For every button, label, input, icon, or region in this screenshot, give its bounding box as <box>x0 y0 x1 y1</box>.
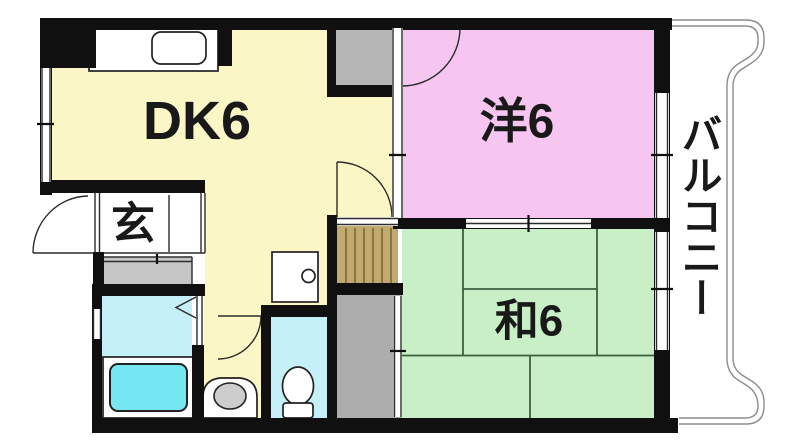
wall-segment <box>327 283 403 295</box>
balcony-label: バルコニー <box>675 113 721 318</box>
bathtub <box>110 364 187 411</box>
japanese-room-label: 和6 <box>495 297 563 346</box>
wall-segment <box>654 18 670 432</box>
wall-segment <box>192 345 204 418</box>
wall-segment <box>261 305 271 418</box>
toilet-bowl <box>283 367 314 405</box>
washbasin-bowl <box>214 383 246 409</box>
wall-segment <box>40 18 672 30</box>
wall-segment <box>218 18 232 66</box>
lower-closet <box>337 295 402 418</box>
floorplan-drawing: DK6 洋6 和6 玄 バルコニー <box>0 0 800 447</box>
wall-segment <box>327 85 403 97</box>
kitchen-sink <box>152 32 206 64</box>
dk-room-label: DK6 <box>143 91 251 151</box>
genkan-label: 玄 <box>111 200 155 249</box>
wall-segment <box>327 215 337 432</box>
wall-segment <box>92 418 678 433</box>
upper-closet <box>336 27 397 86</box>
western-room-label: 洋6 <box>480 96 555 149</box>
wall-segment <box>40 180 205 193</box>
wall-segment <box>261 305 337 317</box>
wall-segment <box>92 284 205 296</box>
floorplan-canvas: DK6 洋6 和6 玄 バルコニー <box>0 0 800 447</box>
washing-machine-drain <box>302 270 315 283</box>
toilet-tank <box>283 403 313 418</box>
